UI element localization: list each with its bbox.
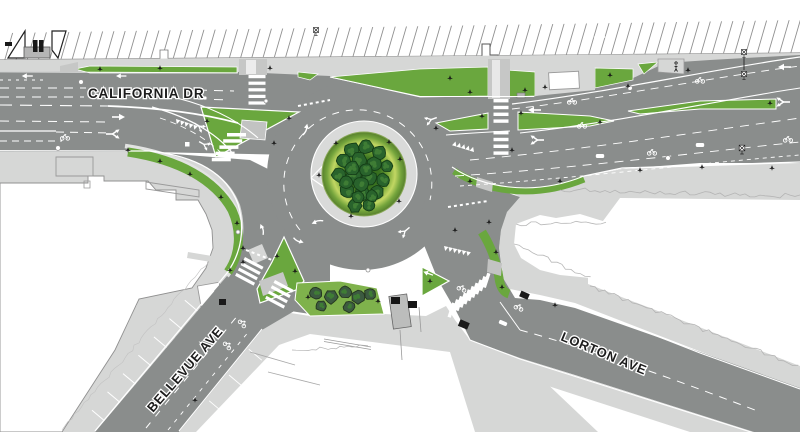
svg-text:CALIFORNIA DR: CALIFORNIA DR (88, 86, 204, 101)
